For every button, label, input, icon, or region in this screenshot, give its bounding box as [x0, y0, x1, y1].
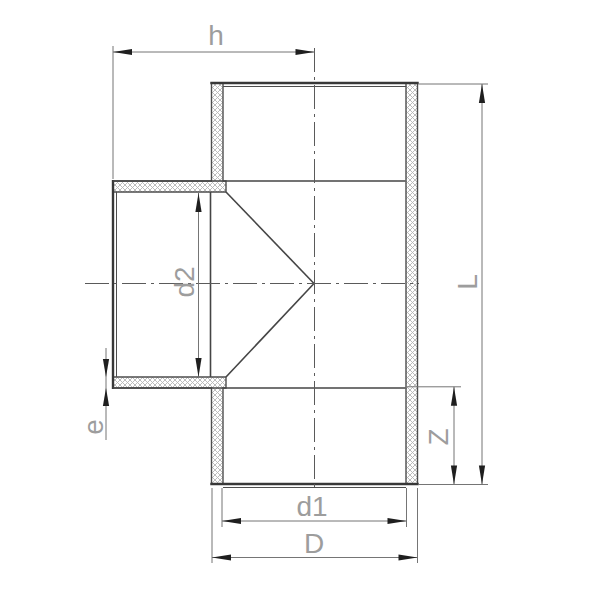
- h-dimension-label: h: [208, 20, 224, 51]
- L-dimension-label: L: [452, 274, 483, 290]
- D-dimension-label: D: [304, 528, 324, 559]
- Z-dimension-label: Z: [423, 428, 454, 445]
- e-dimension-label: e: [78, 419, 109, 435]
- technical-drawing-page: h d2 e d1 D Z: [0, 0, 600, 600]
- d1-dimension-label: d1: [296, 491, 327, 522]
- d2-dimension-label: d2: [169, 266, 200, 297]
- tee-fitting-drawing: h d2 e d1 D Z: [0, 0, 600, 600]
